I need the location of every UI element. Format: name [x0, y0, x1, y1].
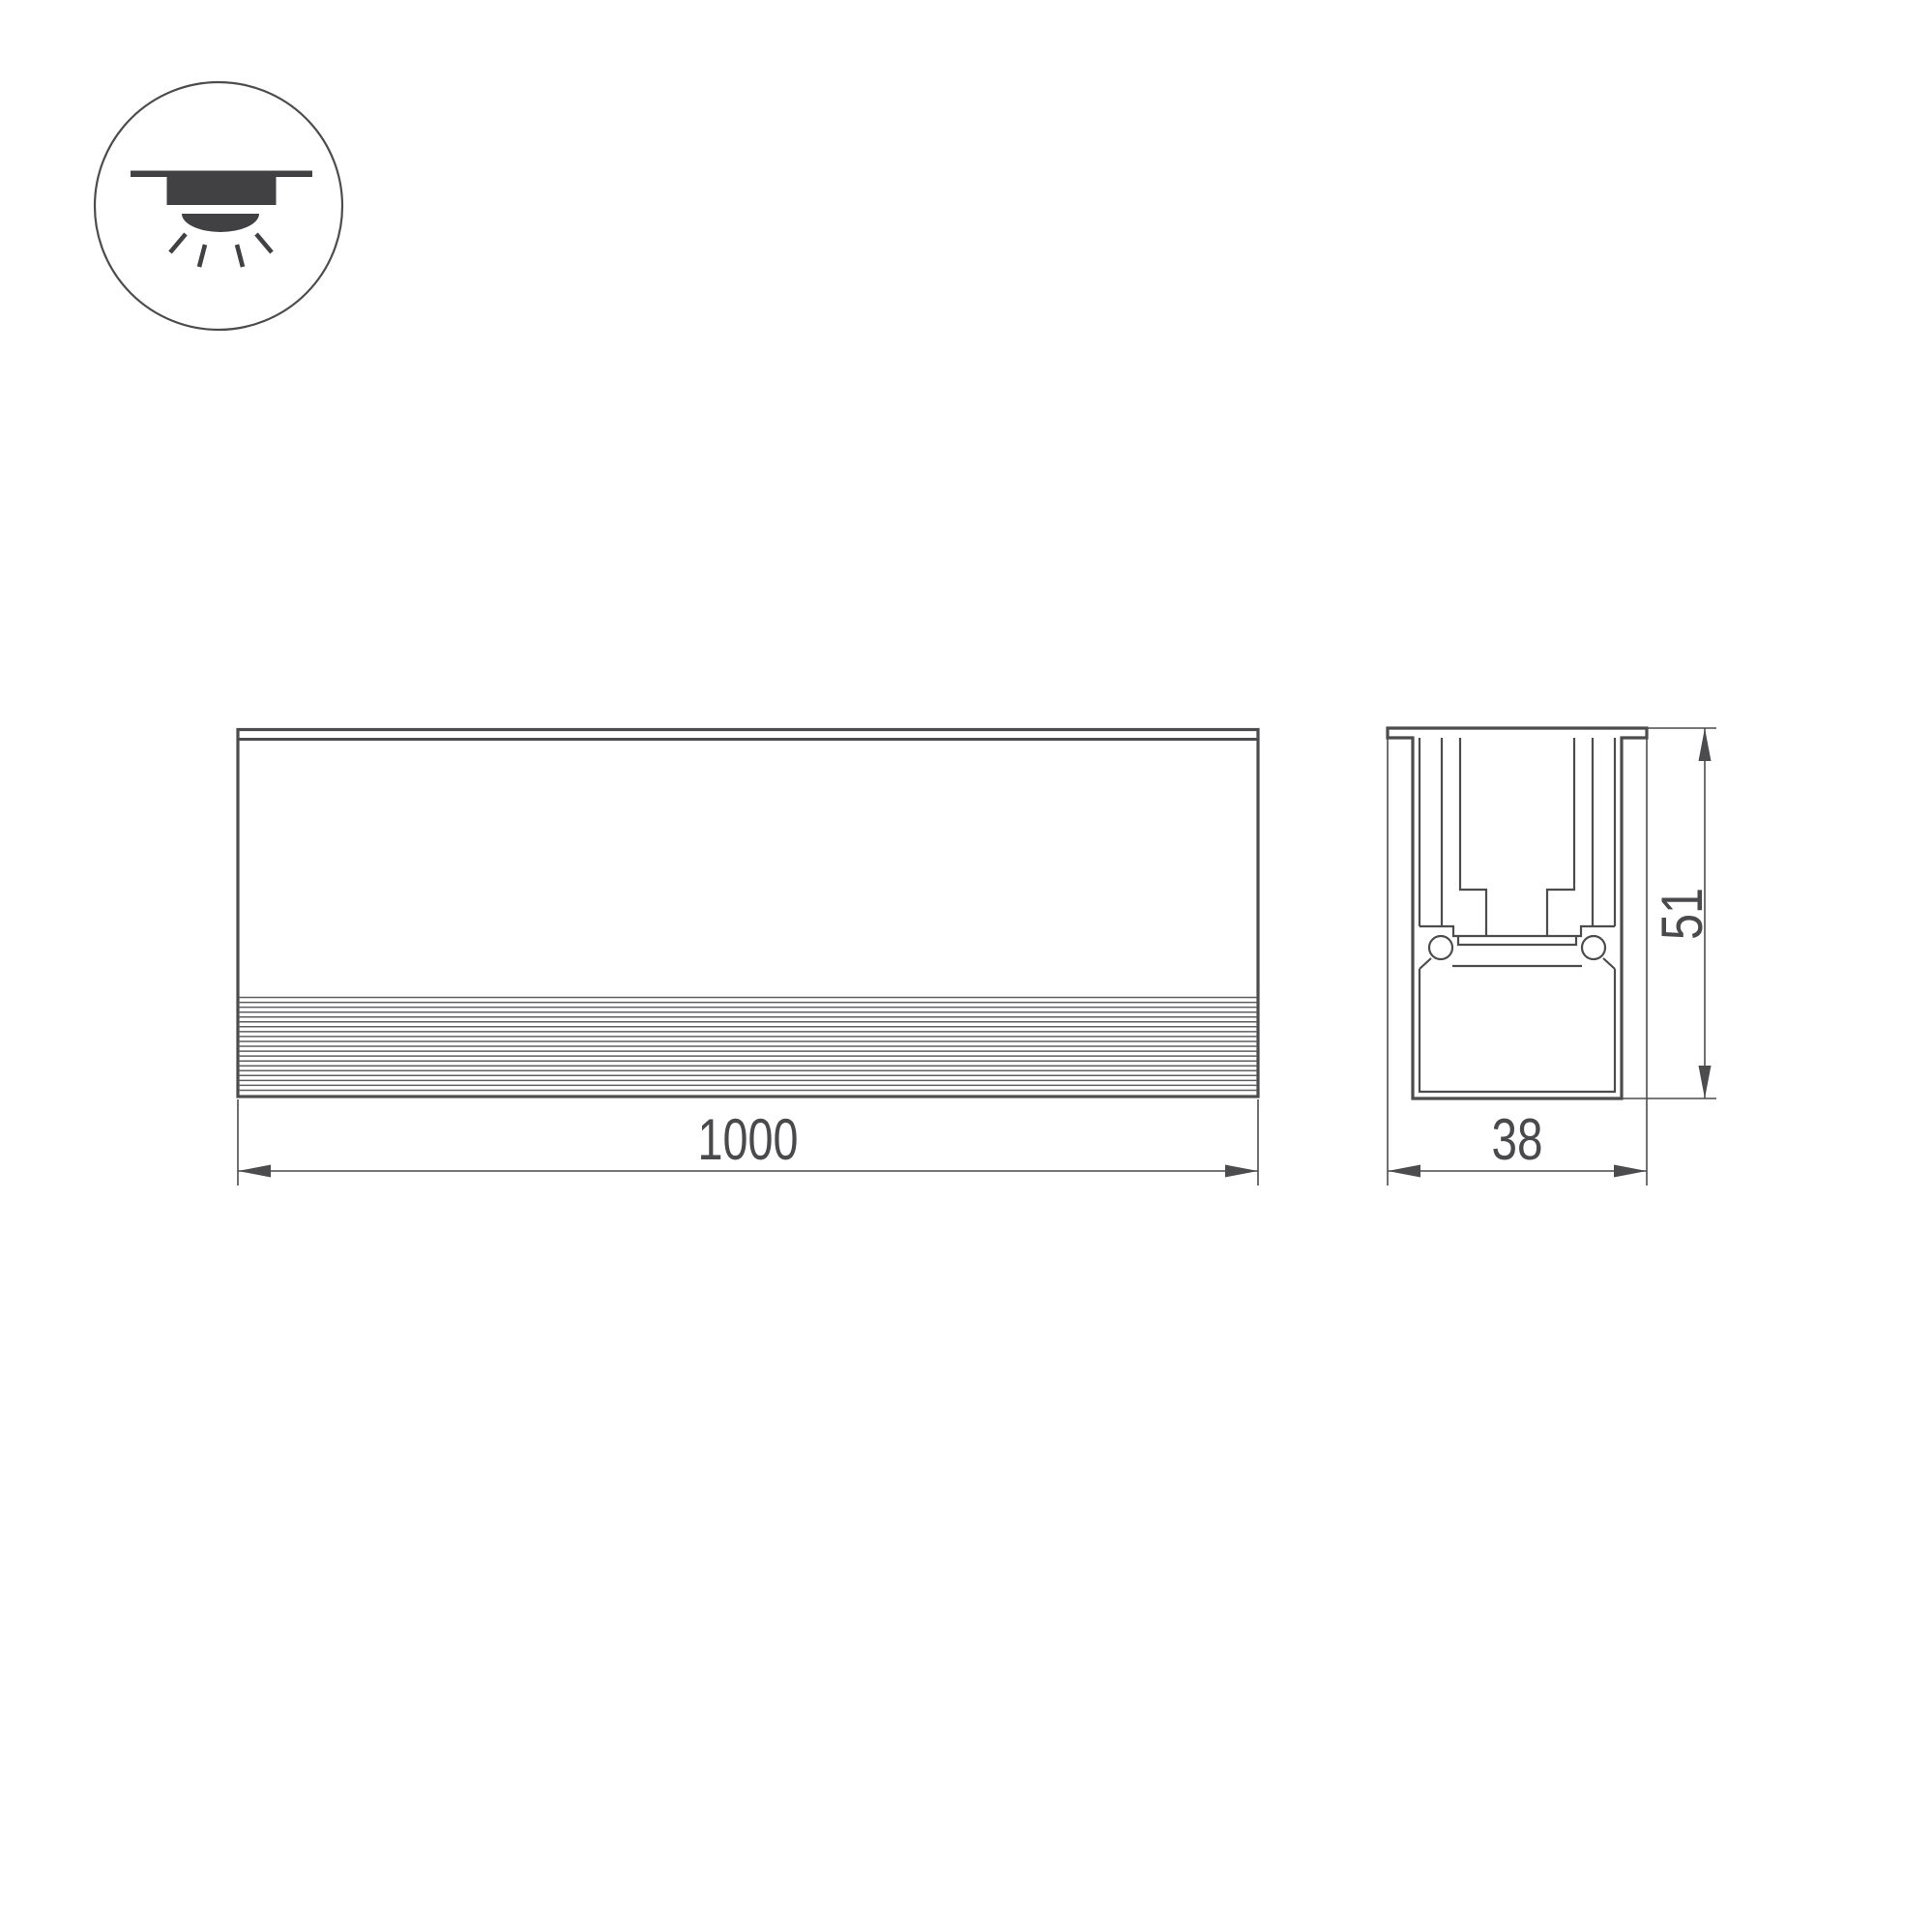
height-arrow-bottom	[1699, 1066, 1712, 1098]
width-dimension: 38	[1388, 730, 1647, 1186]
section-lower-inner-wall	[1420, 969, 1615, 1092]
icon-recessed-body	[167, 171, 277, 206]
length-arrow-left	[238, 1165, 271, 1178]
width-arrow-left	[1388, 1165, 1420, 1178]
section-outer-outline	[1388, 728, 1647, 1098]
section-clip-bump-left	[1429, 936, 1452, 959]
height-arrow-top	[1699, 728, 1712, 761]
length-arrow-right	[1225, 1165, 1258, 1178]
height-dimension: 51	[1622, 728, 1716, 1098]
section-diffuser-lip	[1420, 958, 1615, 969]
length-dimension: 1000	[238, 1099, 1258, 1186]
front-view-diffuser-ribs	[239, 998, 1257, 1091]
front-view	[238, 730, 1258, 1098]
drawing-svg: 1000 38	[0, 0, 1932, 1932]
section-upper-fins	[1420, 738, 1615, 926]
icon-circle-outline	[95, 82, 342, 330]
dimension-width-label: 38	[1492, 1107, 1543, 1172]
dimension-length-label: 1000	[698, 1107, 799, 1172]
section-led-channel	[1460, 738, 1574, 936]
dimension-height-label: 51	[1650, 888, 1714, 940]
section-view: 38 51	[1388, 728, 1716, 1186]
section-clip-bump-right	[1582, 936, 1605, 959]
recessed-downlight-icon	[95, 82, 342, 330]
width-arrow-right	[1614, 1165, 1647, 1178]
technical-drawing-page: 1000 38	[0, 0, 1932, 1932]
